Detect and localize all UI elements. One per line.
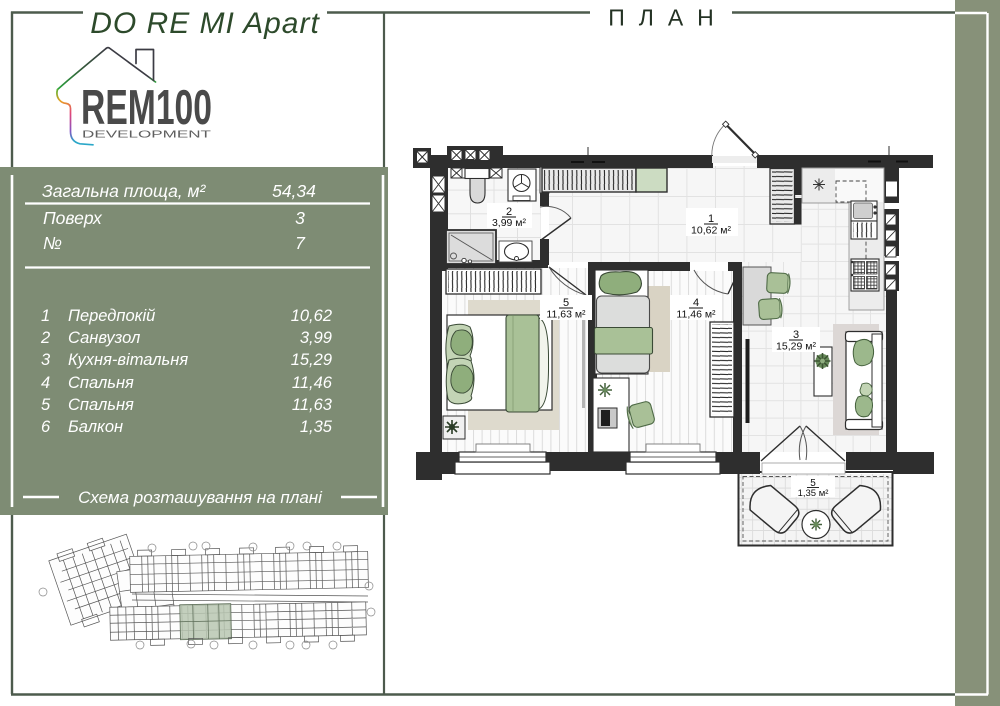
- svg-text:7: 7: [295, 233, 306, 253]
- svg-text:3,99 м²: 3,99 м²: [492, 217, 527, 229]
- svg-text:1,35 м²: 1,35 м²: [798, 488, 829, 499]
- svg-text:15,29 м²: 15,29 м²: [776, 341, 816, 353]
- svg-text:Спальня: Спальня: [68, 396, 134, 414]
- svg-text:5: 5: [563, 297, 569, 309]
- svg-text:15,29: 15,29: [291, 351, 332, 369]
- svg-text:11,46 м²: 11,46 м²: [676, 309, 716, 321]
- svg-text:11,63 м²: 11,63 м²: [546, 309, 586, 321]
- svg-text:REM100: REM100: [81, 81, 212, 135]
- svg-text:2: 2: [40, 329, 50, 347]
- svg-text:4: 4: [693, 297, 699, 309]
- svg-text:4: 4: [41, 374, 50, 392]
- svg-text:Схема розташування на плані: Схема розташування на плані: [78, 488, 323, 507]
- svg-text:Санвузол: Санвузол: [68, 329, 140, 347]
- svg-text:DEVELOPMENT: DEVELOPMENT: [82, 129, 212, 141]
- svg-text:Кухня-вітальня: Кухня-вітальня: [68, 351, 188, 369]
- svg-text:1: 1: [708, 213, 714, 225]
- svg-text:6: 6: [41, 418, 51, 436]
- svg-text:3: 3: [41, 351, 51, 369]
- svg-text:Передпокій: Передпокій: [68, 307, 155, 325]
- svg-text:3: 3: [295, 208, 305, 228]
- svg-text:1: 1: [41, 307, 50, 325]
- svg-text:3: 3: [793, 329, 799, 341]
- svg-text:10,62 м²: 10,62 м²: [691, 225, 731, 237]
- svg-text:DO RE MI Apart: DO RE MI Apart: [90, 7, 320, 40]
- svg-text:Поверх: Поверх: [43, 208, 103, 228]
- svg-text:1,35: 1,35: [300, 418, 333, 436]
- svg-text:ПЛАН: ПЛАН: [608, 5, 728, 31]
- svg-text:3,99: 3,99: [300, 329, 332, 347]
- svg-text:Загальна площа, м²: Загальна площа, м²: [42, 181, 207, 201]
- svg-text:№: №: [43, 233, 62, 253]
- svg-text:Спальня: Спальня: [68, 374, 134, 392]
- svg-text:5: 5: [41, 396, 51, 414]
- svg-text:11,46: 11,46: [292, 374, 333, 392]
- svg-text:11,63: 11,63: [292, 396, 333, 414]
- svg-text:Балкон: Балкон: [68, 418, 123, 436]
- svg-text:10,62: 10,62: [291, 307, 332, 325]
- svg-text:54,34: 54,34: [272, 181, 316, 201]
